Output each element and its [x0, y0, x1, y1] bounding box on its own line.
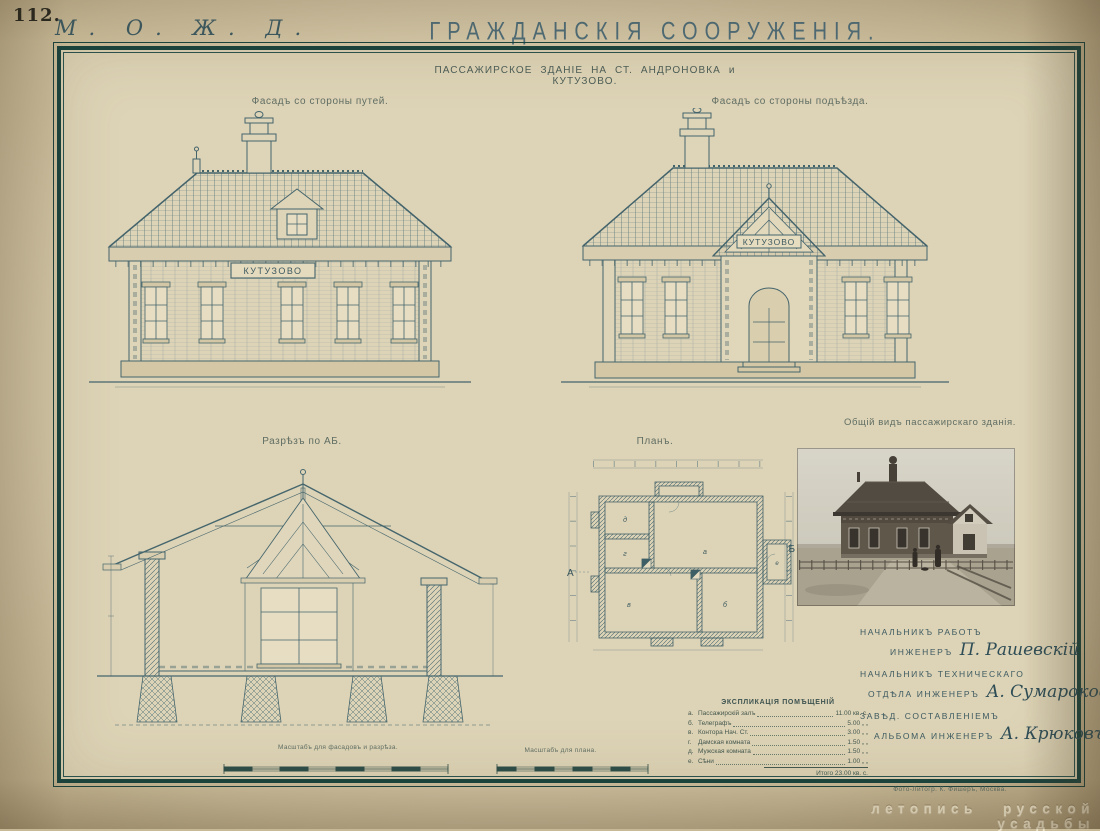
elevation-track-drawing: КУТУЗОВО [85, 111, 475, 401]
room-letter-e: е [775, 561, 779, 567]
album-plate-page: 112. М. О. Ж. Д. ГРАЖДАНСКІЯ СООРУЖЕНІЯ.… [0, 0, 1100, 829]
album-title: ГРАЖДАНСКІЯ СООРУЖЕНІЯ. [405, 18, 905, 41]
room-letter-d: д [623, 516, 627, 524]
roof-pinnacle [193, 147, 200, 173]
caption-section: Разрѣзъ по АБ. [187, 436, 417, 447]
station-building-track-side: КУТУЗОВО [89, 112, 471, 388]
station-sign-track-text: КУТУЗОВО [243, 266, 302, 276]
signature-name: А. Сумароковъ [986, 682, 1100, 702]
explication-row: е.Сѣни1.00 „ „ [688, 757, 868, 767]
station-photograph [797, 448, 1015, 606]
chimney [680, 108, 714, 168]
railway-monogram: М. О. Ж. Д. [55, 16, 313, 40]
caption-scale-plan: Масштабъ для плана. [478, 747, 643, 754]
explication-title: ЭКСПЛИКАЦІЯ ПОМѢЩЕНІЙ [688, 699, 868, 706]
foundation-piers [115, 676, 491, 725]
room-letter-v: в [627, 602, 631, 609]
collection-watermark: летопись русской усадьбы [770, 801, 1095, 831]
scale-bar-plan [495, 761, 650, 777]
signature-block: НАЧАЛЬНИКЪ РАБОТЪ ИНЖЕНЕРЪП. Рашевскій Н… [860, 627, 1100, 753]
signature-role: НАЧАЛЬНИКЪ РАБОТЪ [860, 627, 1100, 637]
section-drawing [95, 460, 505, 745]
caption-plan: Планъ. [595, 436, 715, 447]
section-marker-a: А [567, 568, 574, 579]
signature-technical-chief: НАЧАЛЬНИКЪ ТЕХНИЧЕСКАГО ОТДѢЛА ИНЖЕНЕРЪА… [860, 669, 1100, 702]
caption-elevation-track: Фасадъ со стороны путей. [205, 96, 435, 107]
room-letter-a: а [703, 549, 707, 556]
caption-photo: Общій видъ пассажирскаго зданія. [810, 417, 1050, 428]
page-number: 112. [13, 5, 61, 26]
right-wall [427, 584, 441, 676]
signature-album-editor: ЗАВѢД. СОСТАВЛЕНІЕМЪ АЛЬБОМА ИНЖЕНЕРЪА. … [860, 711, 1100, 744]
explication-row: б.Телеграфъ5.00 „ „ [688, 719, 868, 729]
explication-row: в.Контора Нач. Ст.3.00 „ „ [688, 728, 868, 738]
explication-row: г.Дамская комната1.50 „ „ [688, 738, 868, 748]
printer-imprint: Фото-Литогр. К. Фишеръ, Москва. [845, 786, 1055, 793]
sheet-subtitle: ПАССАЖИРСКОЕ ЗДАНІЕ НА СТ. АНДРОНОВКА и … [405, 65, 765, 87]
station-sign-track: КУТУЗОВО [231, 263, 315, 278]
interior-wall-window [245, 580, 353, 671]
signature-role-2: ИНЖЕНЕРЪ [890, 647, 953, 657]
caption-scale-facades: Масштабъ для фасадовъ и разрѣза. [218, 744, 458, 751]
explication-total: Итого 23.00 кв. с. [764, 767, 868, 777]
signature-role: ЗАВѢД. СОСТАВЛЕНІЕМЪ [860, 711, 1100, 721]
room-explication-table: ЭКСПЛИКАЦІЯ ПОМѢЩЕНІЙ а.Пассажирскій зал… [688, 699, 868, 777]
room-letter-g: г [623, 551, 627, 558]
section-marker-b: Б [788, 544, 795, 555]
signature-role-2: АЛЬБОМА ИНЖЕНЕРЪ [874, 731, 994, 741]
left-wall [145, 558, 159, 676]
building-cross-section [97, 470, 503, 726]
caption-elevation-entry: Фасадъ со стороны подъѣзда. [675, 96, 905, 107]
explication-row: а.Пассажирскій залъ11.00 кв. с. [688, 709, 868, 719]
explication-row: д.Мужская комната1.50 „ „ [688, 747, 868, 757]
signature-role: НАЧАЛЬНИКЪ ТЕХНИЧЕСКАГО [860, 669, 1100, 679]
plan-drawing: а б в г д е А Б [563, 452, 798, 657]
signature-chief-of-works: НАЧАЛЬНИКЪ РАБОТЪ ИНЖЕНЕРЪП. Рашевскій [860, 627, 1100, 660]
plate-frame: ПАССАЖИРСКОЕ ЗДАНІЕ НА СТ. АНДРОНОВКА и … [57, 46, 1081, 783]
signature-name: А. Крюковъ [1001, 724, 1100, 744]
scale-bar-facades [222, 761, 450, 777]
signature-name: П. Рашевскій [960, 640, 1079, 660]
album-title-text: ГРАЖДАНСКІЯ СООРУЖЕНІЯ. [429, 18, 880, 47]
signature-role-2: ОТДѢЛА ИНЖЕНЕРЪ [868, 689, 979, 699]
room-letter-b: б [723, 601, 728, 609]
chimney [242, 112, 276, 174]
plan-walls [591, 482, 791, 646]
floor-plan: а б в г д е А Б [567, 460, 795, 650]
station-building-entry-side: КУТУЗОВО [561, 108, 949, 387]
station-sign-entry-text: КУТУЗОВО [743, 237, 796, 247]
elevation-entry-drawing: КУТУЗОВО [555, 108, 955, 403]
